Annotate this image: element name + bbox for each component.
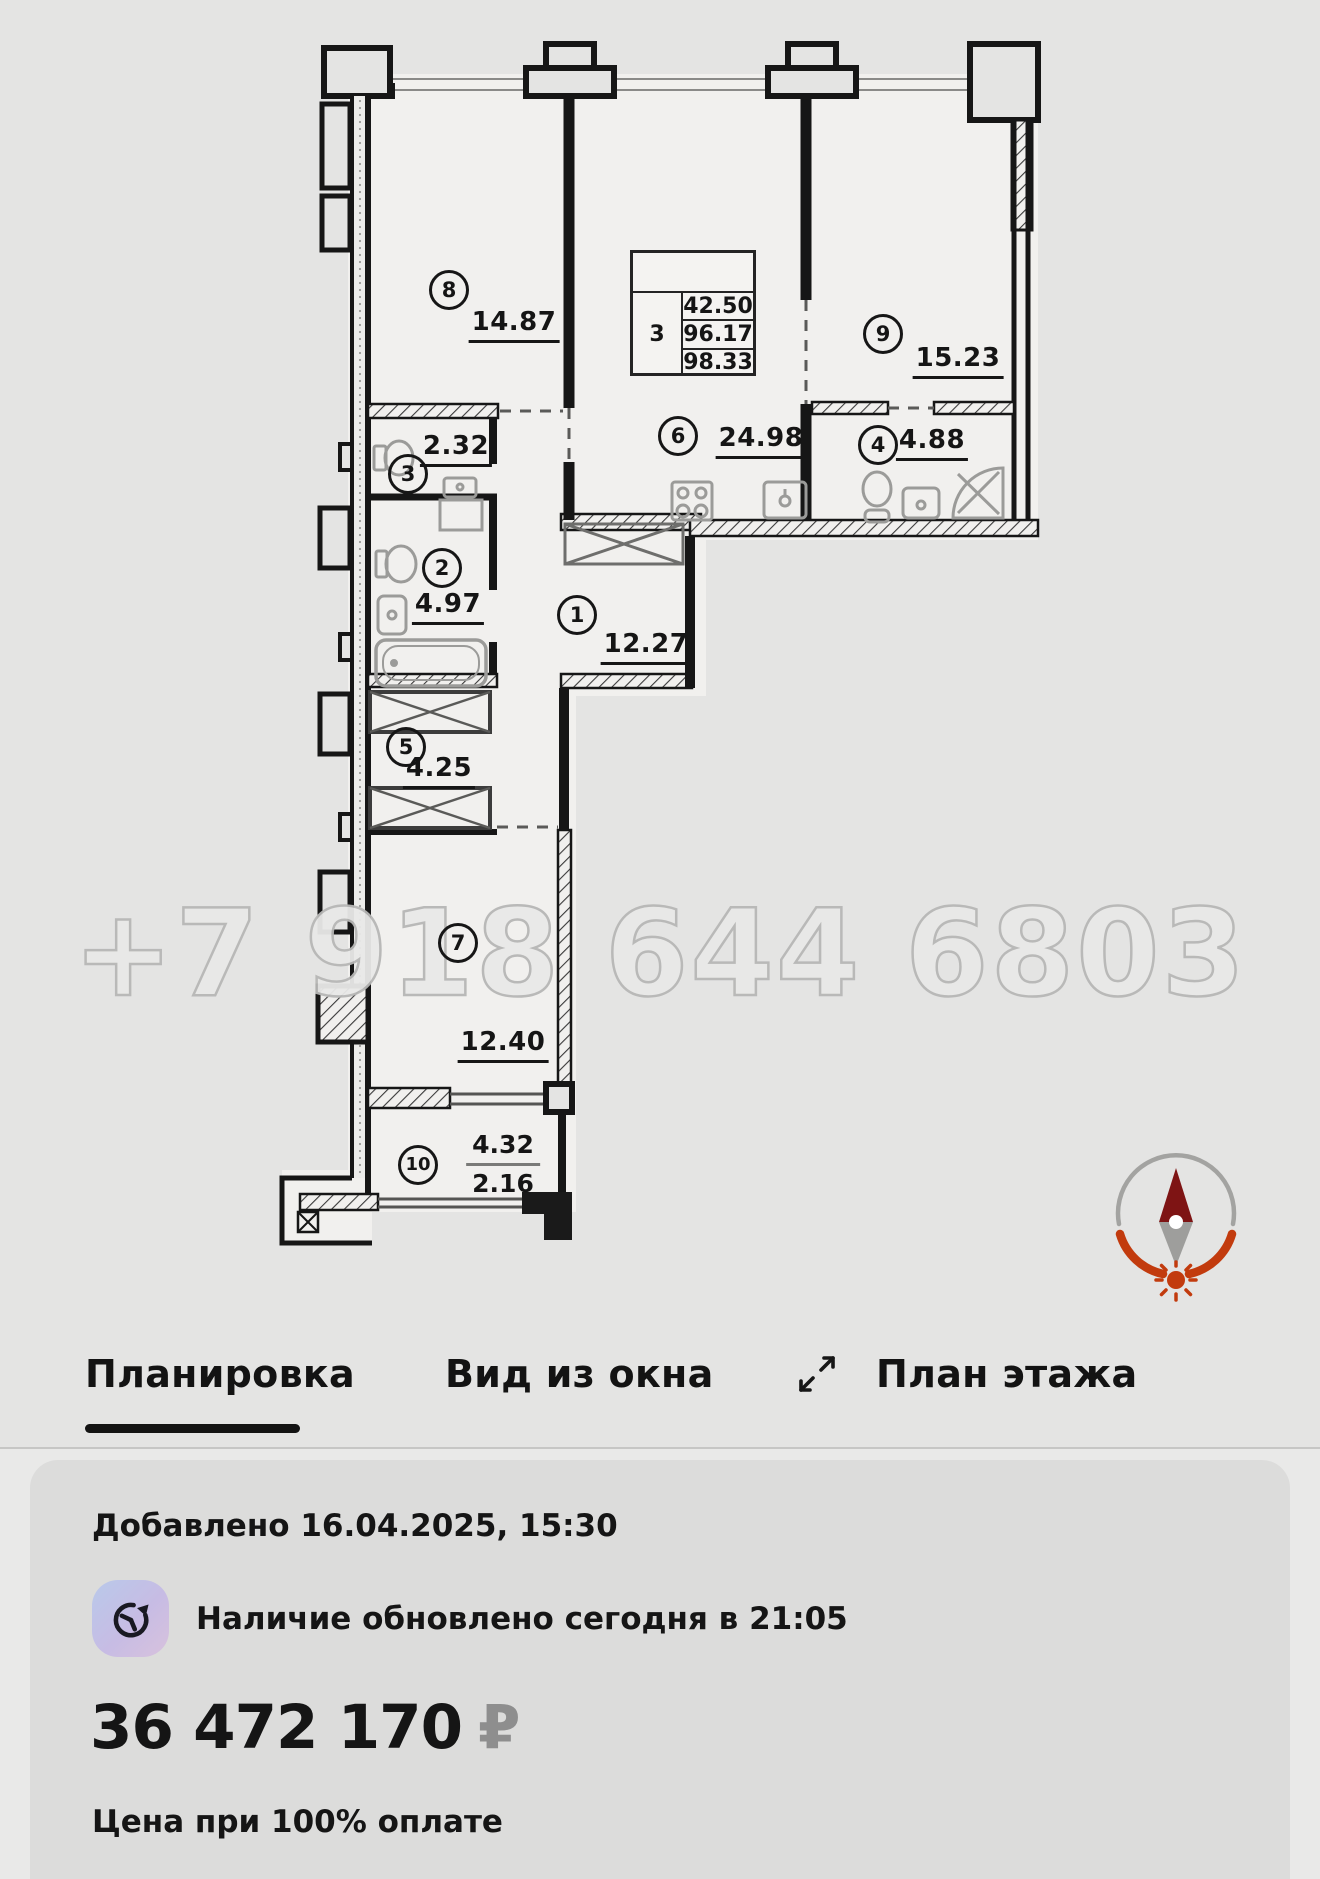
room-4-area: 4.88	[896, 427, 968, 461]
room-4-number: 4	[858, 425, 898, 465]
room-8-number: 8	[429, 270, 469, 310]
rooms-count: 3	[633, 293, 683, 376]
area-value: 96.17	[683, 319, 753, 347]
availability-label: Наличие обновлено сегодня в 21:05	[196, 1601, 848, 1637]
room-1-area: 12.27	[601, 631, 692, 665]
room-8-area: 14.87	[469, 309, 560, 343]
tab-layout[interactable]: Планировка	[85, 1352, 355, 1396]
room-2-area: 4.97	[412, 591, 484, 625]
room-2-number: 2	[422, 548, 462, 588]
compass-icon	[1118, 1155, 1234, 1300]
floor-plan-image[interactable]: +7 918 644 6803	[0, 0, 1320, 1320]
listing-screen: +7 918 644 6803	[0, 0, 1320, 1879]
room-10-number: 10	[398, 1145, 438, 1185]
room-3-area: 2.32	[420, 433, 492, 467]
watermark-phone: +7 918 644 6803	[73, 885, 1247, 1024]
total-area-value: 98.33	[683, 348, 753, 376]
tab-window-view[interactable]: Вид из окна	[445, 1352, 714, 1396]
room-9-number: 9	[863, 314, 903, 354]
bottom-corner-block	[546, 1084, 572, 1112]
living-area-value: 42.50	[683, 293, 753, 319]
details-card: Добавлено 16.04.2025, 15:30 Наличие обно…	[30, 1460, 1290, 1879]
room-1-number: 1	[557, 595, 597, 635]
currency-symbol: ₽	[478, 1692, 519, 1763]
price-note: Цена при 100% оплате	[92, 1804, 503, 1840]
price-value: 36 472 170	[90, 1692, 462, 1763]
tab-floor-plan[interactable]: План этажа	[876, 1352, 1137, 1396]
added-date-label: Добавлено 16.04.2025, 15:30	[92, 1508, 618, 1544]
availability-clock-icon	[92, 1580, 169, 1657]
room-10-area: 4.32 2.16	[466, 1132, 540, 1196]
room-6-area: 24.98	[716, 425, 807, 459]
room-5-area: 4.25	[403, 755, 475, 789]
price-row: 36 472 170₽	[90, 1692, 519, 1763]
apartment-info-table: 3 42.50 96.17 98.33	[630, 250, 756, 376]
room-9-area: 15.23	[913, 345, 1004, 379]
room-10-area-upper: 4.32	[466, 1132, 540, 1166]
expand-arrows-icon[interactable]	[795, 1352, 839, 1396]
active-tab-underline	[85, 1424, 300, 1433]
entry-step-block	[522, 1192, 572, 1240]
lower-section: Добавлено 16.04.2025, 15:30 Наличие обно…	[0, 1449, 1320, 1879]
room-7-area: 12.40	[458, 1029, 549, 1063]
info-table-band	[633, 253, 753, 293]
left-wall	[282, 96, 372, 1243]
room-10-area-lower: 2.16	[466, 1166, 540, 1196]
room-7-number: 7	[438, 923, 478, 963]
room-6-number: 6	[658, 416, 698, 456]
